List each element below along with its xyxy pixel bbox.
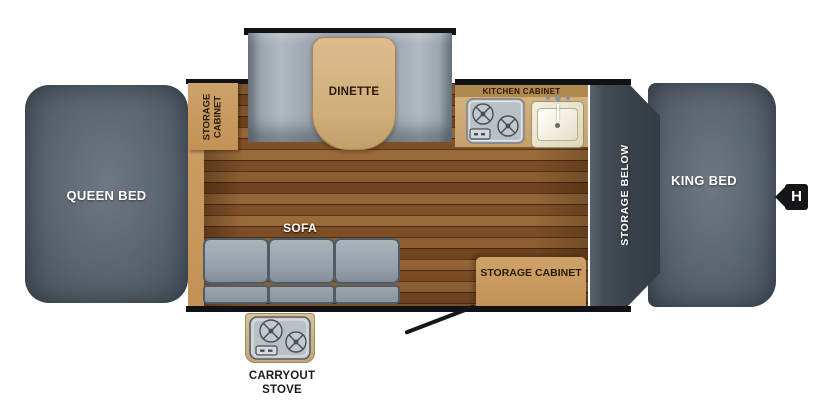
stove-icon: [249, 316, 311, 360]
carryout-stove-pad: [245, 313, 315, 363]
front-storage-cabinet: STORAGE CABINET: [188, 79, 238, 150]
sofa-back-cushion: [268, 238, 335, 284]
faucet-stream: [557, 104, 559, 121]
carryout-stove-label: CARRYOUT STOVE: [240, 370, 324, 397]
kitchen-cabinet-label: KITCHEN CABINET: [455, 87, 588, 96]
hitch-label: H: [785, 184, 808, 210]
faucet-spout: [555, 95, 561, 101]
kitchen-cabinet: KITCHEN CABINET: [455, 85, 588, 147]
floorplan-canvas: KING BED STORAGE BELOW STORAGE CABINET Q…: [0, 0, 824, 420]
king-bed: KING BED: [648, 83, 776, 307]
storage-below-panel: STORAGE BELOW: [590, 83, 660, 306]
faucet-knob-right: [566, 96, 570, 100]
wall-bottom: [186, 306, 631, 312]
queen-bed-label: QUEEN BED: [25, 188, 188, 203]
rear-storage-cabinet: STORAGE CABINET: [476, 257, 586, 306]
dinette-label: DINETTE: [313, 86, 395, 98]
sink-drain: [555, 123, 560, 128]
front-storage-cabinet-label: STORAGE CABINET: [202, 84, 225, 150]
queen-bed: QUEEN BED: [25, 85, 188, 303]
rear-storage-cabinet-label: STORAGE CABINET: [476, 267, 586, 281]
sofa-label: SOFA: [250, 221, 350, 235]
dinette-table: DINETTE: [312, 37, 396, 150]
sofa-back-cushion: [334, 238, 400, 284]
sofa-seat-cushion: [268, 285, 335, 304]
faucet-knob-left: [546, 96, 550, 100]
sofa-seat-cushion: [203, 285, 269, 304]
sink-icon: [531, 101, 584, 148]
storage-below-label: STORAGE BELOW: [619, 90, 631, 300]
stove-icon: [466, 98, 525, 144]
sofa-seat-cushion: [334, 285, 400, 304]
sofa-back-cushion: [203, 238, 269, 284]
